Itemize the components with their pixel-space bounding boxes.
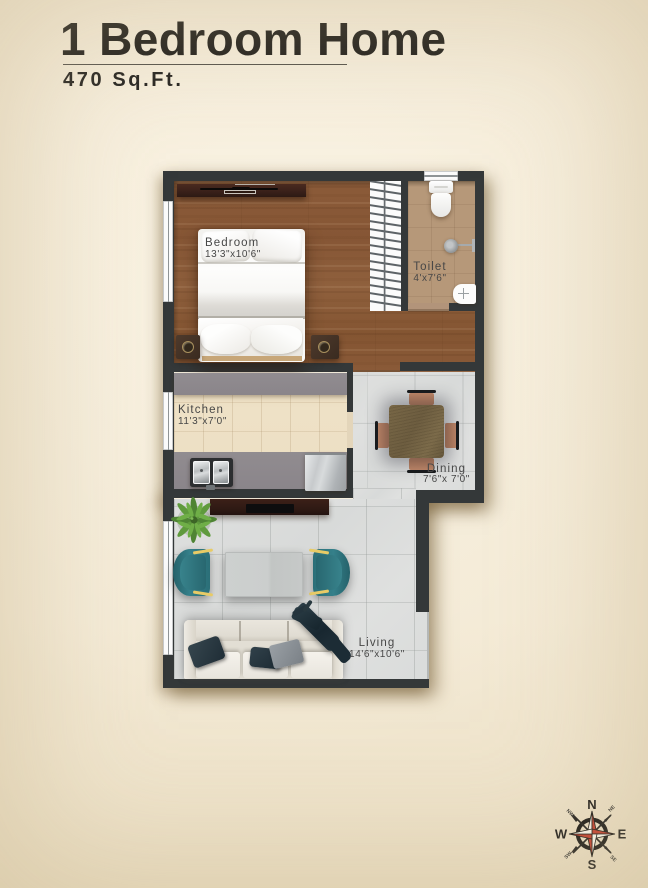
svg-text:NE: NE — [607, 804, 617, 814]
svg-text:E: E — [618, 827, 627, 842]
svg-text:SE: SE — [608, 854, 617, 863]
svg-text:S: S — [588, 857, 597, 872]
svg-text:W: W — [555, 827, 568, 842]
svg-text:N: N — [587, 797, 596, 812]
